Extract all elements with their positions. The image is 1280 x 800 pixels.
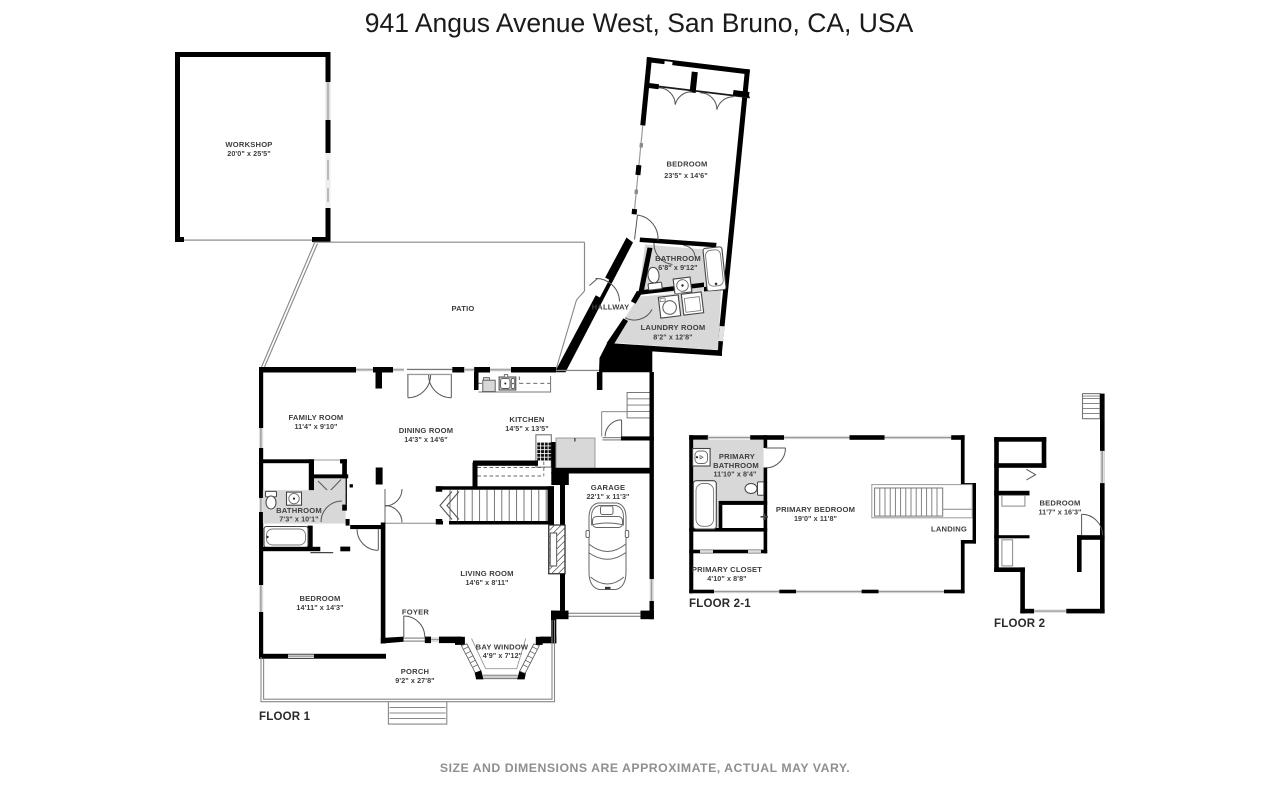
svg-text:PATIO: PATIO	[451, 304, 474, 313]
svg-text:DINING ROOM: DINING ROOM	[399, 426, 454, 435]
svg-text:FAMILY ROOM: FAMILY ROOM	[289, 413, 344, 422]
svg-text:19'0" x 11'8": 19'0" x 11'8"	[794, 514, 837, 523]
svg-text:SIZE AND DIMENSIONS ARE APPROX: SIZE AND DIMENSIONS ARE APPROXIMATE, ACT…	[440, 761, 850, 775]
svg-text:WORKSHOP: WORKSHOP	[225, 140, 272, 149]
svg-text:PRIMARY: PRIMARY	[719, 452, 755, 461]
svg-text:9'2" x 27'8": 9'2" x 27'8"	[395, 676, 434, 685]
svg-text:FOYER: FOYER	[402, 608, 429, 617]
svg-text:PRIMARY CLOSET: PRIMARY CLOSET	[692, 565, 762, 574]
svg-text:14'6" x 8'11": 14'6" x 8'11"	[465, 578, 508, 587]
svg-text:11'10" x 8'4": 11'10" x 8'4"	[713, 470, 756, 479]
svg-text:PRIMARY BEDROOM: PRIMARY BEDROOM	[776, 505, 855, 514]
svg-text:PORCH: PORCH	[401, 667, 429, 676]
svg-text:7'3" x 10'1": 7'3" x 10'1"	[279, 515, 318, 524]
svg-text:14'5" x 13'5": 14'5" x 13'5"	[505, 424, 549, 433]
svg-text:LIVING ROOM: LIVING ROOM	[460, 569, 513, 578]
svg-text:BEDROOM: BEDROOM	[1039, 499, 1080, 508]
svg-text:BEDROOM: BEDROOM	[299, 594, 340, 603]
svg-text:KITCHEN: KITCHEN	[509, 415, 544, 424]
svg-text:4'9" x 7'12": 4'9" x 7'12"	[483, 651, 522, 660]
svg-text:LAUNDRY ROOM: LAUNDRY ROOM	[641, 323, 706, 332]
svg-text:FLOOR 1: FLOOR 1	[259, 711, 311, 723]
svg-text:HALLWAY: HALLWAY	[592, 303, 630, 312]
svg-text:11'7" x 16'3": 11'7" x 16'3"	[1038, 508, 1081, 517]
svg-text:LANDING: LANDING	[931, 525, 967, 534]
svg-text:FLOOR 2-1: FLOOR 2-1	[689, 598, 751, 610]
svg-text:BATHROOM: BATHROOM	[655, 254, 701, 263]
svg-text:14'11" x 14'3": 14'11" x 14'3"	[296, 603, 343, 612]
svg-text:11'4" x 9'10": 11'4" x 9'10"	[294, 422, 337, 431]
svg-text:14'3" x 14'6": 14'3" x 14'6"	[404, 435, 448, 444]
svg-text:20'0" x 25'5": 20'0" x 25'5"	[227, 149, 271, 158]
svg-text:23'5" x 14'6": 23'5" x 14'6"	[664, 171, 708, 180]
svg-text:BEDROOM: BEDROOM	[666, 160, 707, 169]
svg-text:4'10" x 8'8": 4'10" x 8'8"	[707, 574, 746, 583]
svg-text:FLOOR 2: FLOOR 2	[994, 618, 1045, 630]
svg-text:6'8" x 9'12": 6'8" x 9'12"	[658, 263, 697, 272]
svg-text:8'2" x 12'8": 8'2" x 12'8"	[653, 333, 692, 342]
svg-text:GARAGE: GARAGE	[591, 483, 626, 492]
svg-text:22'1" x 11'3": 22'1" x 11'3"	[586, 492, 629, 501]
svg-text:941 Angus Avenue West, San Bru: 941 Angus Avenue West, San Bruno, CA, US…	[365, 8, 914, 38]
